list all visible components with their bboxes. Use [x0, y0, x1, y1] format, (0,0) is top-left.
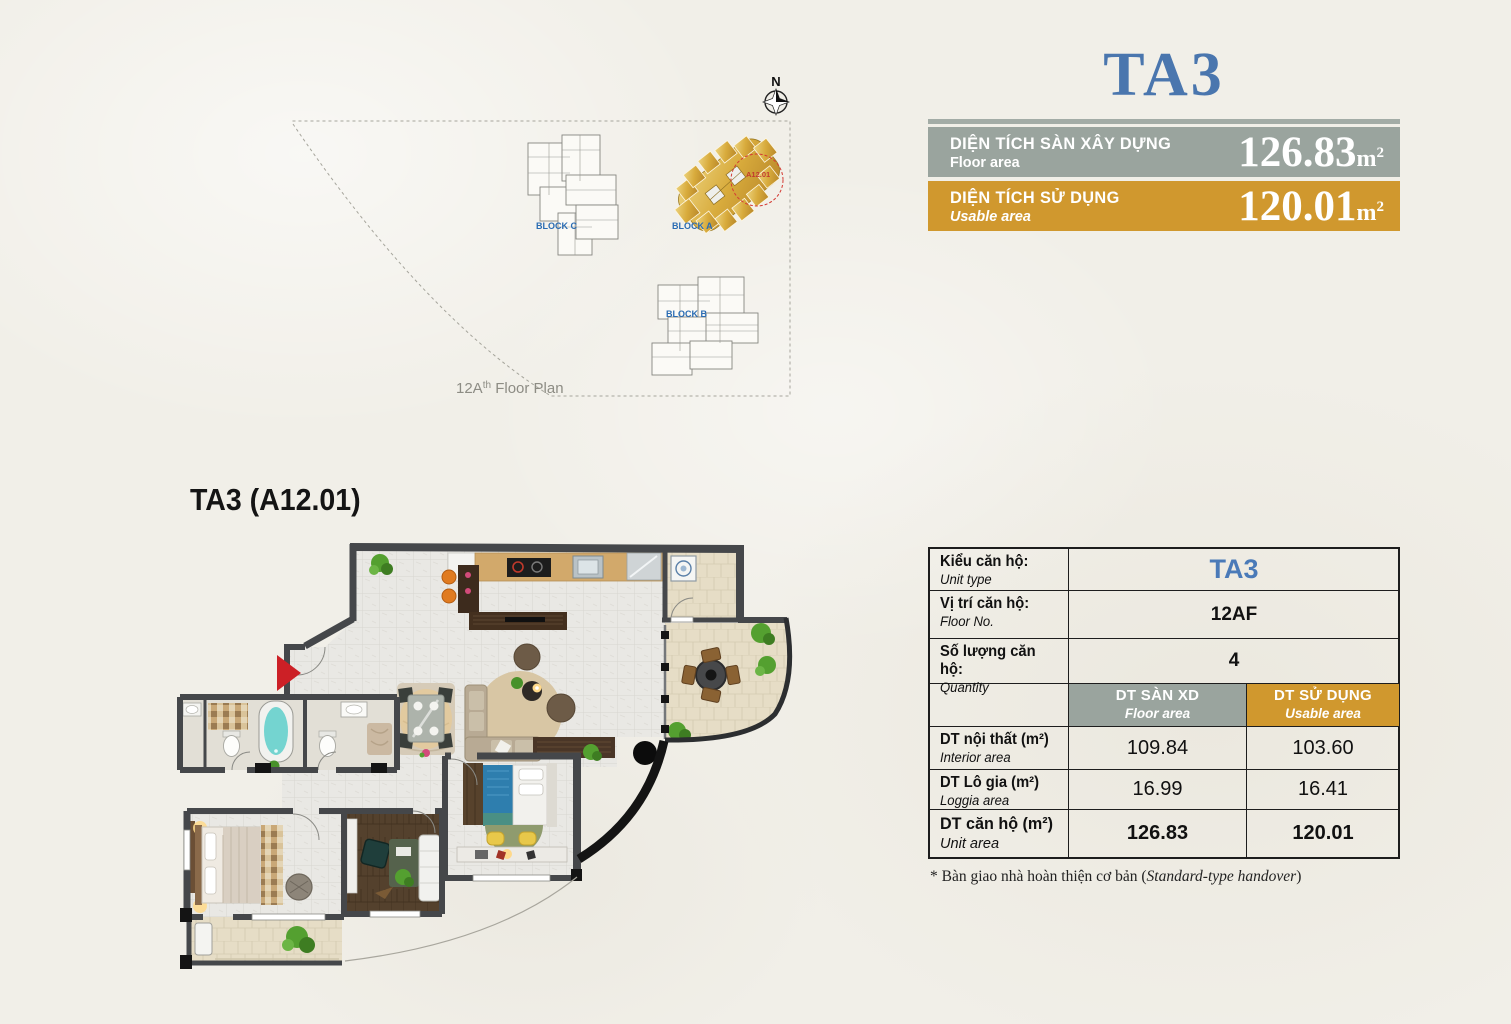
quantity-label-en: Quantity	[940, 680, 1058, 695]
unit-type-label: Kiểu căn hộ: Unit type	[930, 549, 1069, 591]
unit-type-label-en: Unit type	[940, 572, 1058, 587]
caption-floor: 12A	[456, 380, 483, 397]
accent-mosaic-runner	[261, 825, 283, 905]
floor-no-label-en: Floor No.	[940, 614, 1058, 629]
compass: N	[763, 74, 789, 115]
bathtub	[259, 701, 293, 762]
site-plan: N BLOCK C	[270, 55, 810, 415]
floor-area-label-vn: DIỆN TÍCH SÀN XÂY DỰNG	[950, 134, 1171, 154]
bath-counter-mosaic	[208, 703, 248, 730]
floor-no-label: Vị trí căn hộ: Floor No.	[930, 591, 1069, 639]
outdoor-chair	[682, 665, 697, 685]
caption-rest: Floor Plan	[491, 380, 564, 397]
floor-area-number: 126.83	[1238, 129, 1356, 176]
col-header-floor-vn: DT SÀN XD	[1116, 687, 1200, 706]
loggia-area-label: DT Lô gia (m²) Loggia area	[930, 770, 1069, 810]
floor-no-value: 12AF	[1069, 591, 1399, 639]
brochure-page: N BLOCK C	[0, 0, 1511, 1024]
quantity-label: Số lượng căn hộ: Quantity	[930, 639, 1069, 684]
interior-area-label: DT nội thất (m²) Interior area	[930, 727, 1069, 770]
usable-area-banner: DIỆN TÍCH SỬ DỤNG Usable area 120.01m2	[928, 181, 1400, 231]
loggia-area-label-en: Loggia area	[940, 793, 1058, 808]
desk-chair	[360, 838, 390, 868]
block-b-plan	[652, 277, 758, 375]
col-header-floor-area: DT SÀN XD Floor area	[1069, 684, 1247, 727]
unit-type-label-vn: Kiểu căn hộ:	[940, 553, 1056, 571]
block-b-label: BLOCK B	[666, 309, 707, 319]
unit-area-label: DT căn hộ (m²) Unit area	[930, 810, 1069, 857]
col-header-floor-en: Floor area	[1125, 706, 1190, 723]
usable-area-label-en: Usable area	[950, 208, 1031, 225]
site-plan-caption: 12Ath Floor Plan	[456, 380, 564, 397]
outdoor-chair	[726, 665, 741, 685]
dining-set	[397, 683, 455, 758]
floor-area-unit-exp: 2	[1377, 145, 1385, 161]
caption-sup: th	[483, 380, 491, 391]
plant	[511, 677, 523, 689]
loggia-floor-area-value: 16.99	[1069, 770, 1247, 810]
usable-area-label-vn: DIỆN TÍCH SỬ DỤNG	[950, 188, 1120, 208]
toilet	[223, 731, 240, 757]
quantity-label-vn: Số lượng căn hộ:	[940, 643, 1056, 679]
interior-area-label-vn: DT nội thất (m²)	[940, 731, 1056, 749]
water-heater	[195, 923, 212, 955]
bedroom2-desk	[457, 847, 567, 862]
usable-area-value: 120.01m2	[1238, 182, 1384, 231]
handover-footnote: * Bàn giao nhà hoàn thiện cơ bản (Standa…	[930, 868, 1410, 886]
unit-spec-table: Kiểu căn hộ: Unit type TA3 Vị trí căn hộ…	[928, 547, 1400, 859]
usable-area-unit-exp: 2	[1377, 199, 1385, 215]
bar-stool	[442, 589, 456, 603]
block-a-label: BLOCK A	[672, 221, 713, 231]
unit-area-label-vn: DT căn hộ (m²)	[940, 814, 1056, 834]
bedroom-2	[457, 763, 567, 862]
unit-type-value: TA3	[1069, 549, 1399, 591]
footnote-suffix: )	[1296, 868, 1301, 885]
plan-label: TA3 (A12.01)	[190, 482, 361, 518]
block-c-plan	[528, 135, 618, 255]
pouf	[547, 694, 575, 722]
wardrobe	[463, 763, 483, 825]
interior-area-label-en: Interior area	[940, 750, 1058, 765]
banner-top-strip	[928, 119, 1400, 124]
loggia-usable-area-value: 16.41	[1247, 770, 1399, 810]
unit-area-label-en: Unit area	[940, 835, 1058, 852]
block-a-unit-highlight: A12.01	[746, 170, 770, 179]
floor-area-value: 126.83m2	[1238, 128, 1384, 177]
col-header-usable-area: DT SỬ DỤNG Usable area	[1247, 684, 1399, 727]
bar-stool	[442, 570, 456, 584]
unit-title: TA3	[928, 40, 1400, 111]
usable-area-number: 120.01	[1238, 183, 1356, 230]
block-c-label: BLOCK C	[536, 221, 577, 231]
yellow-chair	[519, 832, 536, 845]
interior-floor-area-value: 109.84	[1069, 727, 1247, 770]
compass-n-label: N	[771, 74, 780, 89]
footnote-prefix: * Bàn giao nhà hoàn thiện cơ bản (	[930, 868, 1147, 885]
apartment-floor-plan	[175, 525, 805, 1000]
floor-no-label-vn: Vị trí căn hộ:	[940, 595, 1056, 613]
loggia-area-label-vn: DT Lô gia (m²)	[940, 774, 1056, 792]
usable-area-unit: m	[1357, 200, 1377, 226]
floor-area-banner: DIỆN TÍCH SÀN XÂY DỰNG Floor area 126.83…	[928, 127, 1400, 177]
col-header-usable-en: Usable area	[1285, 706, 1361, 723]
interior-usable-area-value: 103.60	[1247, 727, 1399, 770]
floor-area-label-en: Floor area	[950, 154, 1020, 171]
bed-headboard	[195, 825, 202, 905]
floor-area-unit: m	[1357, 146, 1377, 172]
quantity-value: 4	[1069, 639, 1399, 684]
daybed	[419, 835, 440, 901]
unit-usable-area-value: 120.01	[1247, 810, 1399, 857]
toilet	[319, 731, 336, 757]
yellow-chair	[487, 832, 504, 845]
floor-speaker	[633, 741, 657, 765]
bath-rug	[367, 723, 392, 755]
col-header-usable-vn: DT SỬ DỤNG	[1274, 687, 1372, 706]
unit-floor-area-value: 126.83	[1069, 810, 1247, 857]
pouf	[514, 644, 540, 670]
footnote-italic: Standard-type handover	[1147, 868, 1297, 885]
